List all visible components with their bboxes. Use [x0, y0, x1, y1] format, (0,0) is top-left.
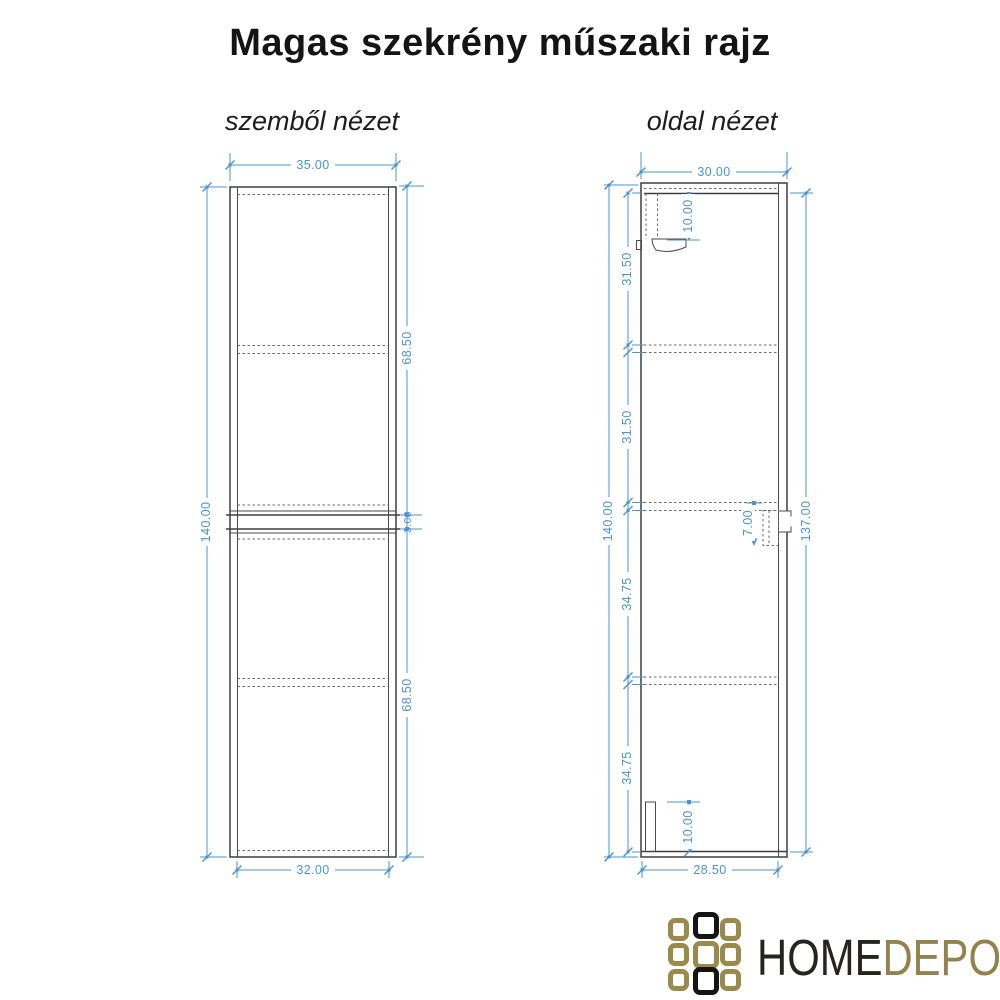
- svg-text:31.50: 31.50: [620, 252, 634, 285]
- svg-text:31.50: 31.50: [620, 410, 634, 443]
- side-dim-top-bracket: 10.00: [667, 192, 700, 241]
- svg-text:35.00: 35.00: [296, 158, 329, 172]
- front-dim-upper-section: 68.50: [399, 182, 424, 516]
- side-dim-top-width: 30.00: [637, 152, 792, 179]
- svg-text:7.00: 7.00: [741, 510, 755, 536]
- svg-text:137.00: 137.00: [799, 501, 813, 542]
- side-bottom-bracket: [646, 802, 656, 852]
- front-dim-bottom-width: 32.00: [233, 861, 394, 878]
- side-dim-bottom-width: 28.50: [638, 861, 783, 878]
- svg-text:32.00: 32.00: [296, 863, 329, 877]
- svg-text:10.00: 10.00: [681, 810, 695, 843]
- svg-text:30.00: 30.00: [697, 165, 730, 179]
- front-dim-height: 140.00: [199, 183, 227, 862]
- front-cabinet-outline: [230, 187, 396, 857]
- logo-text-home: HOME: [757, 929, 882, 986]
- svg-text:3.00: 3.00: [402, 511, 414, 533]
- svg-text:28.50: 28.50: [693, 863, 726, 877]
- logo-wordmark: HOMEDEPO: [757, 932, 1000, 983]
- svg-text:140.00: 140.00: [601, 501, 615, 542]
- drawing-canvas: 35.00 140.00: [0, 0, 1000, 1000]
- side-mid-bracket: [763, 511, 795, 546]
- technical-drawing-page: Magas szekrény műszaki rajz szemből néze…: [0, 0, 1000, 1000]
- side-dim-bottom-bracket: 10.00: [667, 800, 700, 856]
- svg-text:34.75: 34.75: [620, 577, 634, 610]
- front-dim-top-width: 35.00: [226, 153, 401, 181]
- logo-text-depo: DEPO: [882, 929, 1000, 986]
- svg-text:140.00: 140.00: [199, 502, 213, 543]
- side-cabinet-outline: [641, 183, 787, 857]
- logo-grid-icon: [668, 910, 748, 1000]
- svg-text:34.75: 34.75: [620, 751, 634, 784]
- svg-text:68.50: 68.50: [400, 678, 414, 711]
- front-view-drawing: 35.00 140.00: [199, 153, 424, 878]
- front-dim-lower-section: 68.50: [399, 529, 424, 862]
- svg-text:68.50: 68.50: [400, 331, 414, 364]
- side-dim-mid-bracket: 7.00: [741, 501, 762, 546]
- side-top-bracket: [637, 194, 687, 252]
- front-dim-gap: 3.00: [400, 511, 422, 533]
- side-view-drawing: 30.00 140.00: [601, 152, 813, 878]
- svg-text:10.00: 10.00: [681, 199, 695, 232]
